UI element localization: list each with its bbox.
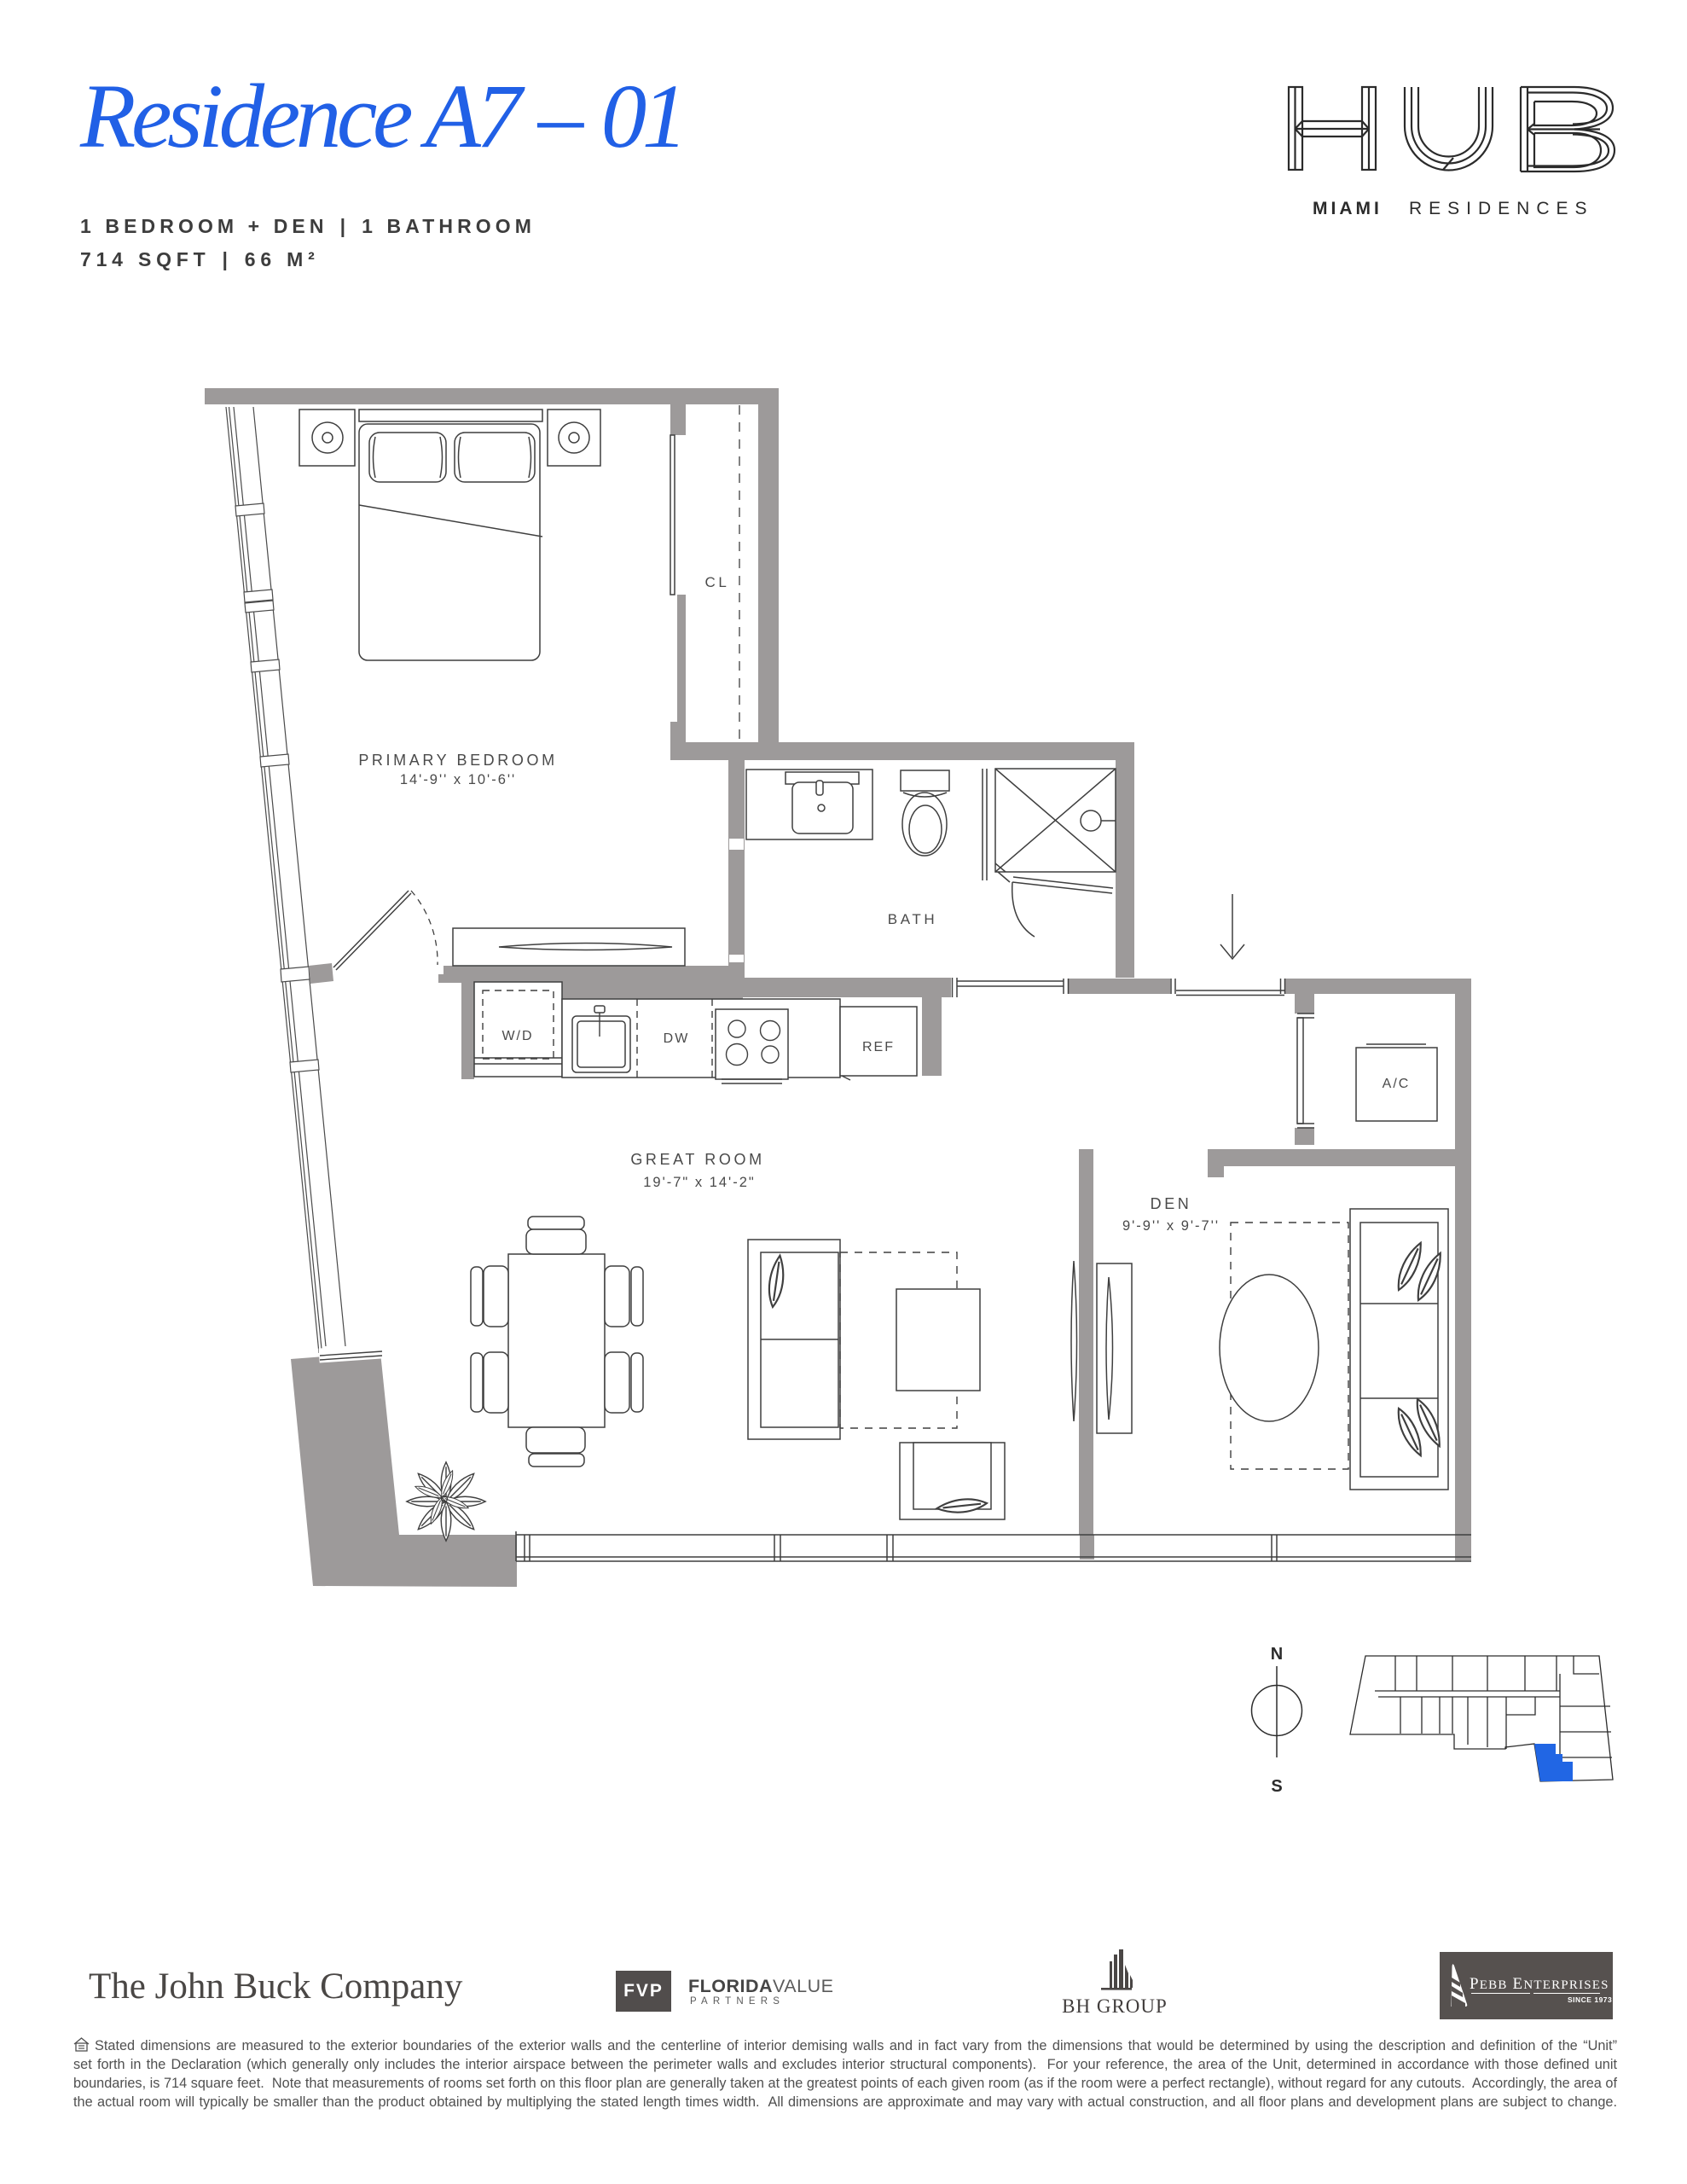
svg-text:PEBB ENTERPRISES: PEBB ENTERPRISES bbox=[1470, 1975, 1609, 1993]
svg-text:BATH: BATH bbox=[888, 911, 937, 927]
svg-text:19'-7" x 14'-2": 19'-7" x 14'-2" bbox=[643, 1175, 755, 1190]
svg-text:N: N bbox=[1271, 1645, 1283, 1664]
svg-text:W/D: W/D bbox=[501, 1029, 533, 1043]
svg-text:GREAT ROOM: GREAT ROOM bbox=[630, 1151, 764, 1168]
svg-text:DW: DW bbox=[664, 1031, 690, 1046]
svg-text:A/C: A/C bbox=[1383, 1077, 1411, 1091]
svg-text:SINCE 1973: SINCE 1973 bbox=[1568, 1995, 1612, 2004]
svg-text:PRIMARY BEDROOM: PRIMARY BEDROOM bbox=[358, 752, 557, 769]
svg-text:S: S bbox=[1271, 1777, 1282, 1796]
svg-text:DEN: DEN bbox=[1151, 1195, 1192, 1212]
svg-text:CL: CL bbox=[705, 574, 730, 590]
svg-text:14'-9'' x 10'-6'': 14'-9'' x 10'-6'' bbox=[400, 772, 516, 787]
svg-text:9'-9'' x 9'-7'': 9'-9'' x 9'-7'' bbox=[1122, 1218, 1220, 1234]
svg-text:REF: REF bbox=[862, 1040, 895, 1054]
